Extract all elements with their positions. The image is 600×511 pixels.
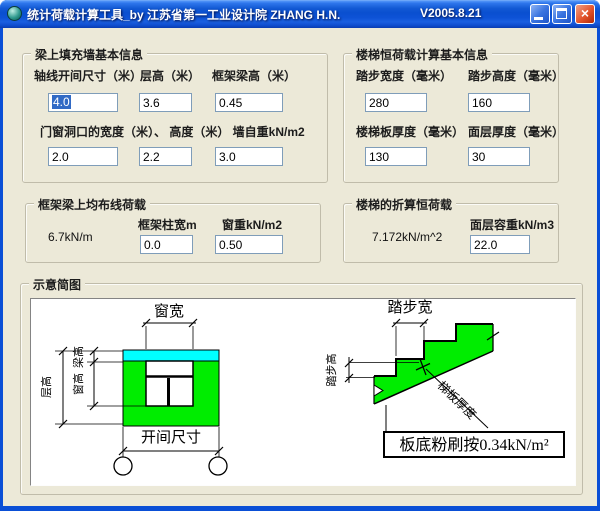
window-width-label: 窗宽 [154,302,184,320]
group-stair-load-title: 楼梯的折算恒荷载 [352,196,456,213]
column-width-label: 框架柱宽m [138,216,197,233]
titlebar[interactable]: 统计荷载计算工具_by 江苏省第一工业设计院 ZHANG H.N. V2005.… [0,0,600,28]
window-title: 统计荷载计算工具_by 江苏省第一工业设计院 ZHANG H.N. [27,6,340,23]
minimize-icon [534,17,543,20]
frame-beam-height-input[interactable] [215,93,283,112]
axis-bay-label: 轴线开间尺寸（米） [34,67,142,84]
group-wall-info: 梁上填充墙基本信息 轴线开间尺寸（米） 层高（米） 框架梁高（米） 4.0 门窗… [22,53,328,183]
group-stair-info: 楼梯恒荷载计算基本信息 踏步宽度（毫米） 踏步高度（毫米） 楼梯板厚度（毫米） … [343,53,559,183]
app-window: 统计荷载计算工具_by 江苏省第一工业设计院 ZHANG H.N. V2005.… [0,0,600,511]
beam-height-label: 梁高 [71,346,85,368]
window-weight-label: 窗重kN/m2 [222,216,282,233]
schematic-svg: 窗宽 梁高 窗高 层高 [31,299,575,485]
beam-load-result: 6.7kN/m [48,230,93,244]
axis-bay-value-selected: 4.0 [52,95,71,109]
floor-height-label: 层高 [39,376,53,398]
finish-unit-weight-input[interactable] [470,235,530,254]
riser-height-label: 踏步高度（毫米） [468,67,564,84]
riser-height-label: 踏步高 [324,354,338,387]
wall-elevation-drawing: 窗宽 梁高 窗高 层高 [39,302,227,475]
plaster-note-text: 板底粉刷按0.34kN/m² [399,436,548,454]
group-stair-load: 楼梯的折算恒荷载 7.172kN/m^2 面层容重kN/m3 [343,203,559,263]
axis-bay-input[interactable]: 4.0 [48,93,118,112]
stair-slab-thickness-input[interactable] [365,147,427,166]
app-icon [7,6,22,21]
finish-unit-weight-label: 面层容重kN/m3 [470,216,554,233]
stair-slab [374,324,493,404]
close-button[interactable]: × [575,4,595,24]
floor-height-label: 层高（米） [140,67,200,84]
frame-beam-height-label: 框架梁高（米） [212,67,296,84]
floor-height-input[interactable] [139,93,192,112]
diagram-panel: 窗宽 梁高 窗高 层高 [30,298,576,486]
wall-self-weight-input[interactable] [215,147,283,166]
beam-strip [123,350,219,361]
maximize-icon [556,8,567,19]
finish-thickness-label: 面层厚度（毫米） [468,123,564,140]
window-height-label: 窗高 [71,373,85,395]
tread-width-input[interactable] [365,93,427,112]
group-wall-title: 梁上填充墙基本信息 [31,46,147,63]
stair-slab-thickness-label: 楼梯板厚度（毫米） [356,123,464,140]
tread-width-label: 踏步宽度（毫米） [356,67,452,84]
stair-section-drawing: 踏步宽 踏步高 梯板厚度 板 [324,299,564,457]
minimize-button[interactable] [530,4,550,24]
group-beam-load-title: 框架梁上均布线荷载 [34,196,150,213]
stair-load-result: 7.172kN/m^2 [372,230,442,244]
window-version: V2005.8.21 [420,6,481,20]
group-stair-info-title: 楼梯恒荷载计算基本信息 [352,46,492,63]
opening-height-input[interactable] [139,147,192,166]
maximize-button[interactable] [552,4,572,24]
axis-bubble-right [209,457,227,475]
opening-width-input[interactable] [48,147,118,166]
opening-size-label: 门窗洞口的宽度（米）、 高度（米） 墙自重kN/m2 [40,123,305,140]
riser-height-input[interactable] [468,93,530,112]
tread-width-label: 踏步宽 [387,299,432,316]
slab-thickness-label: 梯板厚度 [435,378,480,422]
axis-bubble-left [114,457,132,475]
bay-size-label: 开间尺寸 [141,429,201,446]
group-beam-load: 框架梁上均布线荷载 6.7kN/m 框架柱宽m 窗重kN/m2 [25,203,321,263]
finish-thickness-input[interactable] [468,147,530,166]
group-diagram-title: 示意简图 [29,276,85,293]
window-weight-input[interactable] [215,235,283,254]
column-width-input[interactable] [140,235,193,254]
